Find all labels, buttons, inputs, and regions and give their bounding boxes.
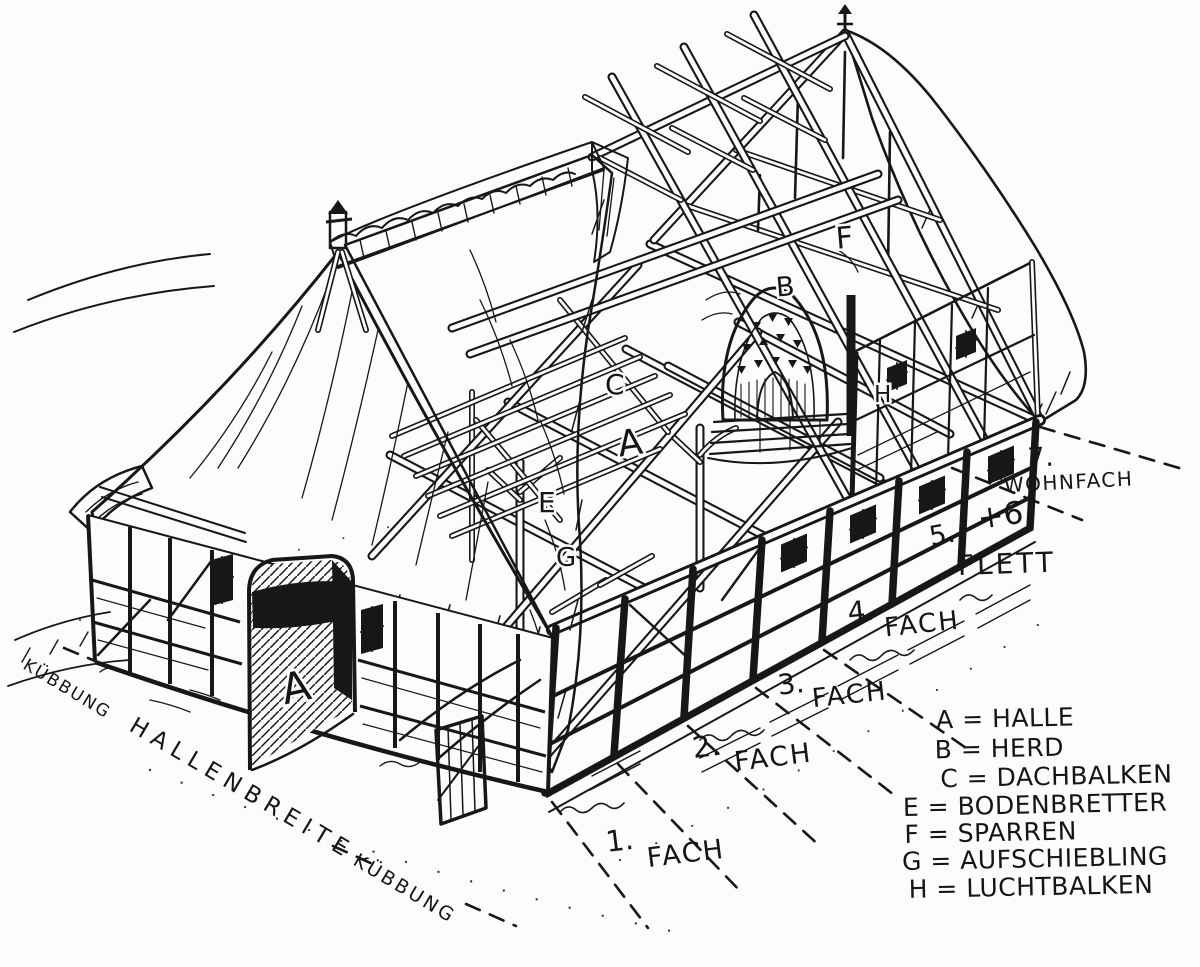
legend-item-luchtbalken: H = LUCHTBALKEN — [908, 870, 1153, 904]
hallenhaus-construction-drawing-page: A A B C E F G H 1. FACH 2. FACH 3. FACH … — [0, 0, 1200, 967]
mark-dachbalken: C — [605, 368, 625, 401]
bay-2-number: 2. — [690, 728, 722, 765]
mark-bodenbretter: E — [538, 486, 556, 519]
gable-window-right — [361, 604, 383, 654]
hallenhaus-cutaway-illustration: A A B C E F G H 1. FACH 2. FACH 3. FACH … — [0, 0, 1200, 967]
mark-aufschiebling: G — [556, 543, 576, 573]
gable-window-left — [211, 554, 233, 606]
bay-4-number: 4. — [846, 594, 876, 630]
bay-5-number: 5. — [927, 518, 958, 553]
legend-item-herd: B = HERD — [934, 733, 1064, 765]
bay-5-word: FLETT — [957, 546, 1056, 582]
mark-sparren: F — [834, 220, 854, 256]
entrance-door-leaf — [332, 560, 352, 700]
bay-3-number: 3. — [776, 666, 806, 702]
bay-1-number: 1. — [604, 822, 636, 859]
legend-item-halle: A = HALLE — [936, 702, 1075, 734]
mark-herd: B — [775, 271, 796, 303]
mark-luchtbalken: H — [874, 382, 891, 408]
bay-5-number2: +6 — [975, 495, 1025, 537]
bay-7-number: 7. — [1027, 442, 1055, 475]
